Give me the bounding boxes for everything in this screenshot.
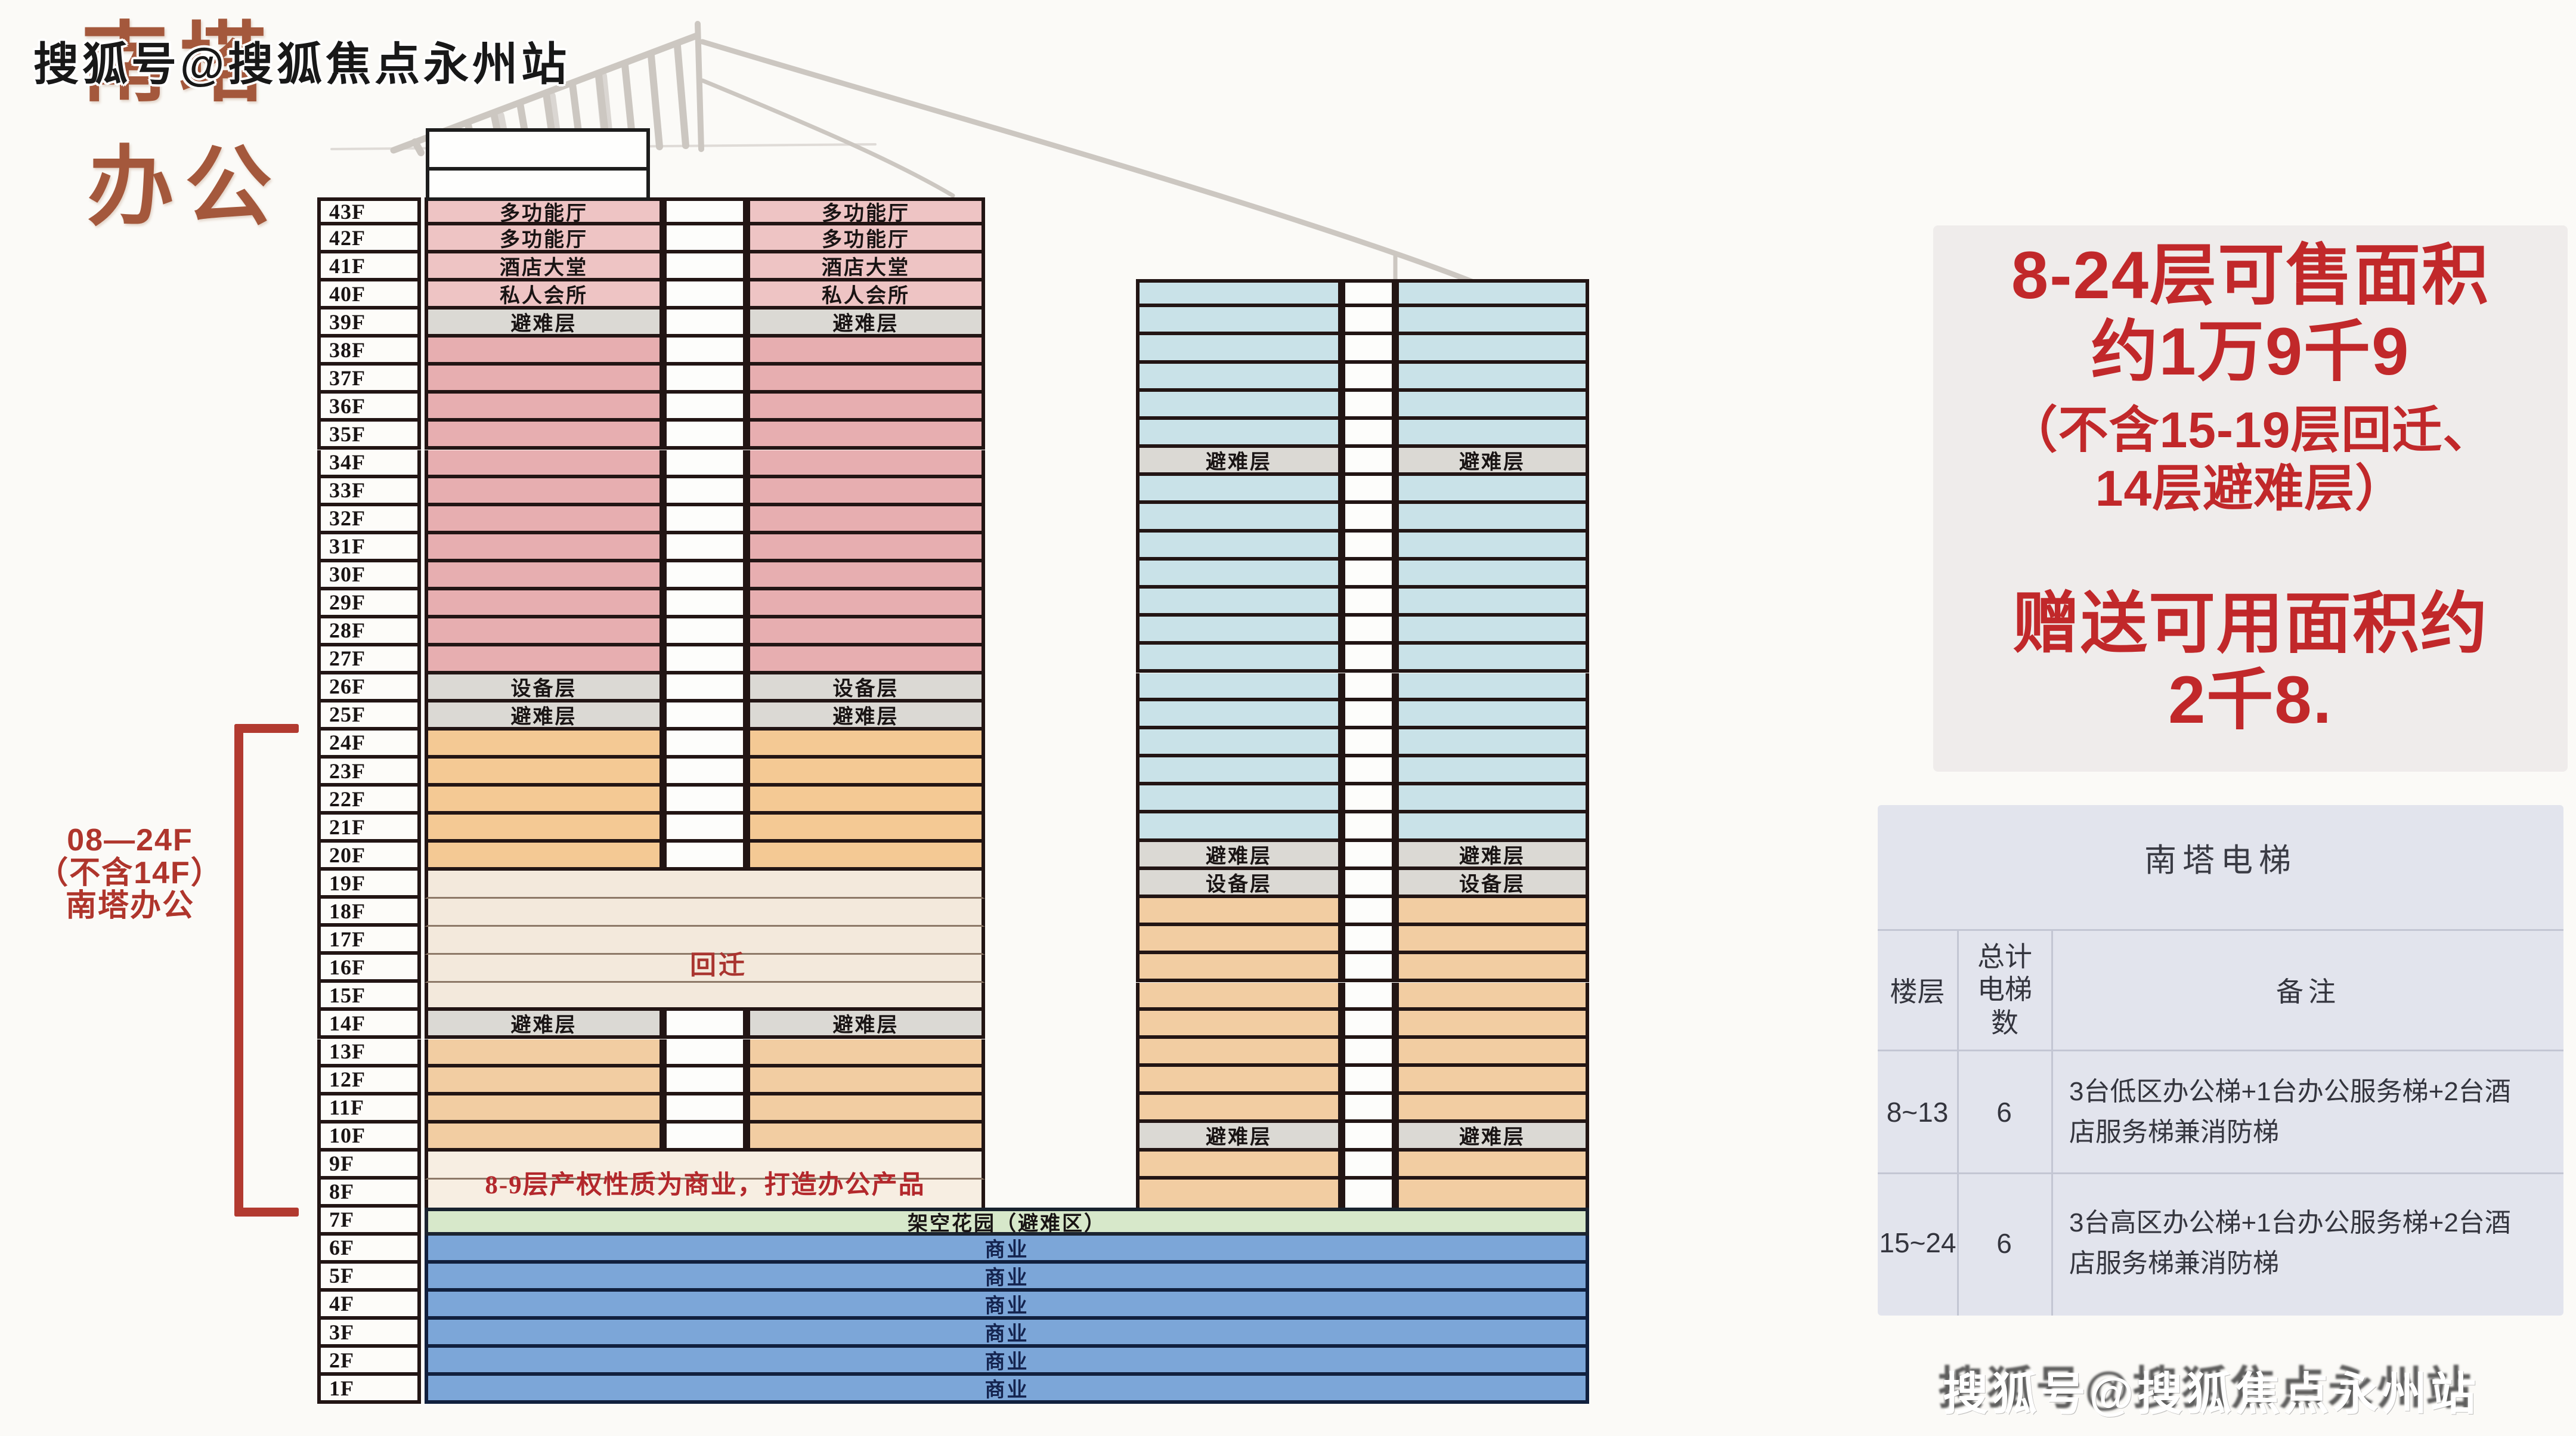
floor-cell-gap-26F <box>663 674 747 702</box>
north-row-11-gap <box>1342 561 1395 589</box>
elevator-row2-note: 3台高区办公梯+1台办公服务梯+2台酒店服务梯兼消防梯 <box>2069 1193 2528 1294</box>
floor-label-22F-text: 22F <box>321 787 366 812</box>
floor-label-6F-text: 6F <box>321 1235 354 1260</box>
north-row-5-left <box>1136 392 1342 420</box>
floor-cell-left-43F: 多功能厅 <box>425 197 663 225</box>
north-row-3-right <box>1395 335 1589 363</box>
floor-cell-gap-39F <box>663 310 747 338</box>
floor-cell-left-25F: 避难层 <box>425 702 663 731</box>
north-row-23-gap <box>1342 898 1395 926</box>
floor-label-9F: 9F <box>317 1152 421 1180</box>
floor-cell-gap-27F <box>663 646 747 674</box>
floor-cell-left-20F <box>425 843 663 871</box>
north-row-26-gap <box>1342 983 1395 1011</box>
north-row-22-left: 设备层 <box>1136 870 1342 898</box>
floor-cell-right-39F-text: 避难层 <box>833 307 899 336</box>
floor-cell-right-22F <box>747 787 985 815</box>
north-row-6-left <box>1136 420 1342 448</box>
watermark-bottom: 搜狐号@搜狐焦点永州站 <box>1943 1357 2479 1423</box>
floor-label-15F-text: 15F <box>321 983 366 1008</box>
north-row-26-left <box>1136 983 1342 1011</box>
north-row-26-right <box>1395 983 1589 1011</box>
floor-cell-1F: 商业 <box>425 1376 1589 1404</box>
north-row-5-right <box>1395 392 1589 420</box>
floor-cell-7F: 架空花园（避难区） <box>425 1208 1589 1236</box>
floor-label-36F-text: 36F <box>321 394 366 419</box>
floor-label-37F-text: 37F <box>321 366 366 391</box>
north-row-19-left <box>1136 785 1342 813</box>
floor-cell-left-38F <box>425 338 663 366</box>
floor-label-5F: 5F <box>317 1264 421 1292</box>
north-row-5-gap <box>1342 392 1395 420</box>
floor-label-16F: 16F <box>317 955 421 983</box>
floor-cell-gap-10F <box>663 1124 747 1152</box>
floor-label-25F-text: 25F <box>321 702 366 727</box>
north-row-28-right <box>1395 1039 1589 1067</box>
floor-cell-left-37F <box>425 366 663 394</box>
floor-cell-right-40F: 私人会所 <box>747 281 985 310</box>
floor-cell-left-35F <box>425 422 663 450</box>
north-row-29-left <box>1136 1067 1342 1095</box>
floor-label-27F: 27F <box>317 646 421 674</box>
floor-cell-left-14F-text: 避难层 <box>511 1008 577 1038</box>
floor-cell-left-40F-text: 私人会所 <box>500 279 588 308</box>
elevator-row1-note: 3台低区办公梯+1台办公服务梯+2台酒店服务梯兼消防梯 <box>2069 1061 2528 1163</box>
floor-label-23F: 23F <box>317 759 421 787</box>
floor-label-7F-text: 7F <box>321 1207 354 1232</box>
floor-label-22F: 22F <box>317 787 421 815</box>
north-row-2-gap <box>1342 307 1395 335</box>
north-row-12-left <box>1136 589 1342 617</box>
floor-cell-gap-37F <box>663 366 747 394</box>
north-row-22-right: 设备层 <box>1395 870 1589 898</box>
bracket-arm-top <box>234 724 299 733</box>
floor-cell-right-20F <box>747 843 985 871</box>
floor-cell-right-24F <box>747 731 985 759</box>
floor-label-17F-text: 17F <box>321 927 366 952</box>
north-row-7-right-text: 避难层 <box>1459 445 1525 475</box>
north-row-18-right <box>1395 757 1589 785</box>
north-row-27-gap <box>1342 1011 1395 1039</box>
north-row-2-right <box>1395 307 1589 335</box>
floor-label-26F-text: 26F <box>321 674 366 699</box>
floor-cell-right-34F <box>747 450 985 478</box>
north-row-30-left <box>1136 1095 1342 1123</box>
north-row-12-right <box>1395 589 1589 617</box>
floor-label-6F: 6F <box>317 1236 421 1264</box>
floor-cell-gap-36F <box>663 394 747 422</box>
floor-cell-left-28F <box>425 618 663 646</box>
north-row-25-right <box>1395 954 1589 982</box>
floor-cell-left-13F <box>425 1039 663 1067</box>
floor-cell-gap-23F <box>663 759 747 787</box>
floor-cell-gap-28F <box>663 618 747 646</box>
north-row-32-gap <box>1342 1152 1395 1180</box>
north-row-17-left <box>1136 729 1342 757</box>
north-row-31-left: 避难层 <box>1136 1123 1342 1151</box>
north-row-33-right <box>1395 1180 1589 1208</box>
floor-cell-gap-22F <box>663 787 747 815</box>
floor-label-3F-text: 3F <box>321 1320 354 1345</box>
floor-label-42F-text: 42F <box>321 225 366 250</box>
crown-box-lower <box>426 167 650 201</box>
floor-label-29F: 29F <box>317 590 421 618</box>
floor-label-8F-text: 8F <box>321 1179 354 1204</box>
huiqian-note: 回迁 <box>668 943 769 982</box>
north-row-3-left <box>1136 335 1342 363</box>
floor-label-28F-text: 28F <box>321 618 366 643</box>
stacking-diagram-page: 南塔 办公 搜狐号@搜狐焦点永州站 搜狐号@搜狐焦点永州站 43F多功能厅多功能… <box>0 0 2576 1436</box>
floor-cell-left-29F <box>425 590 663 618</box>
north-row-16-right <box>1395 701 1589 729</box>
floor-label-41F: 41F <box>317 253 421 281</box>
floor-cell-right-14F: 避难层 <box>747 1011 985 1039</box>
north-row-10-gap <box>1342 533 1395 561</box>
north-row-13-gap <box>1342 617 1395 645</box>
floor-label-11F: 11F <box>317 1095 421 1124</box>
floor-cell-3F-text: 商业 <box>985 1317 1029 1347</box>
floor-cell-gap-43F <box>663 197 747 225</box>
floor-label-30F-text: 30F <box>321 562 366 587</box>
north-row-20-gap <box>1342 813 1395 841</box>
floor-label-38F: 38F <box>317 338 421 366</box>
floor-cell-gap-32F <box>663 506 747 534</box>
floor-cell-right-41F-text: 酒店大堂 <box>822 251 910 280</box>
north-row-15-gap <box>1342 673 1395 701</box>
floor-cell-right-26F: 设备层 <box>747 674 985 702</box>
floor-label-31F: 31F <box>317 534 421 562</box>
floor-cell-left-39F-text: 避难层 <box>511 307 577 336</box>
floor-cell-left-24F <box>425 731 663 759</box>
floor-cell-right-43F: 多功能厅 <box>747 197 985 225</box>
floor-label-12F: 12F <box>317 1067 421 1095</box>
floor-label-10F: 10F <box>317 1124 421 1152</box>
floor-label-39F: 39F <box>317 310 421 338</box>
floor-cell-gap-30F <box>663 562 747 590</box>
floor-label-18F-text: 18F <box>321 899 366 924</box>
north-row-21-left-text: 避难层 <box>1206 840 1272 869</box>
floor-label-33F-text: 33F <box>321 478 366 503</box>
floor-cell-19F <box>425 871 985 899</box>
elevator-header-note: 备注 <box>2053 942 2563 1038</box>
floor-label-40F: 40F <box>317 281 421 310</box>
north-row-10-left <box>1136 533 1342 561</box>
floor-cell-2F: 商业 <box>425 1348 1589 1376</box>
sales-note-line1: 8-24层可售面积 <box>1933 240 2568 312</box>
north-row-13-right <box>1395 617 1589 645</box>
floor-label-32F-text: 32F <box>321 506 366 531</box>
floor-label-20F-text: 20F <box>321 843 366 868</box>
floor-label-24F: 24F <box>317 731 421 759</box>
floor-cell-gap-24F <box>663 731 747 759</box>
floor-label-10F-text: 10F <box>321 1123 366 1148</box>
floor-cell-right-14F-text: 避难层 <box>833 1008 899 1038</box>
floor-cell-7F-text: 架空花园（避难区） <box>908 1207 1106 1236</box>
floor-cell-2F-text: 商业 <box>985 1345 1029 1375</box>
north-row-24-left <box>1136 926 1342 954</box>
floor-cell-right-37F <box>747 366 985 394</box>
floor-cell-right-33F <box>747 478 985 506</box>
north-row-8-gap <box>1342 476 1395 504</box>
floor-cell-right-40F-text: 私人会所 <box>822 279 910 308</box>
floor-label-34F: 34F <box>317 450 421 478</box>
north-row-8-left <box>1136 476 1342 504</box>
floor-cell-left-26F-text: 设备层 <box>511 672 577 701</box>
floor-cell-left-32F <box>425 506 663 534</box>
floor-cell-left-36F <box>425 394 663 422</box>
floor-cell-right-23F <box>747 759 985 787</box>
elevator-header-count: 总计电梯数 <box>1973 937 2037 1042</box>
north-row-33-left <box>1136 1180 1342 1208</box>
bracket-vertical <box>234 724 243 1217</box>
floor-label-1F-text: 1F <box>321 1376 354 1401</box>
floor-cell-right-38F <box>747 338 985 366</box>
crown-box-upper <box>426 128 650 171</box>
floor-cell-15F <box>425 983 985 1011</box>
north-row-4-right <box>1395 364 1589 392</box>
north-row-11-left <box>1136 561 1342 589</box>
sales-note-line6: 2千8. <box>1933 664 2568 736</box>
floor-label-8F: 8F <box>317 1180 421 1208</box>
floor-cell-gap-35F <box>663 422 747 450</box>
floor-cell-right-41F: 酒店大堂 <box>747 253 985 281</box>
floor-cell-right-43F-text: 多功能厅 <box>822 197 910 226</box>
north-row-23-right <box>1395 898 1589 926</box>
floor-cell-right-27F <box>747 646 985 674</box>
floor-label-36F: 36F <box>317 394 421 422</box>
floor-cell-right-42F: 多功能厅 <box>747 225 985 253</box>
floor-cell-right-25F-text: 避难层 <box>833 700 899 729</box>
floor-cell-left-33F <box>425 478 663 506</box>
floor-cell-gap-20F <box>663 843 747 871</box>
floor-label-17F: 17F <box>317 927 421 955</box>
north-row-29-right <box>1395 1067 1589 1095</box>
floor-cell-3F: 商业 <box>425 1320 1589 1348</box>
north-row-18-gap <box>1342 757 1395 785</box>
floor-label-41F-text: 41F <box>321 253 366 278</box>
floor-cell-4F-text: 商业 <box>985 1289 1029 1319</box>
north-row-27-right <box>1395 1011 1589 1039</box>
north-row-19-gap <box>1342 785 1395 813</box>
floor-label-30F: 30F <box>317 562 421 590</box>
elevator-row1-count: 6 <box>1957 1067 2051 1157</box>
floor-cell-right-31F <box>747 534 985 562</box>
floor-cell-gap-21F <box>663 815 747 843</box>
floor-cell-left-39F: 避难层 <box>425 310 663 338</box>
floor-label-42F: 42F <box>317 225 421 253</box>
north-row-22-gap <box>1342 870 1395 898</box>
floor-label-32F: 32F <box>317 506 421 534</box>
bracket-arm-bottom <box>234 1208 299 1217</box>
floor-label-4F: 4F <box>317 1292 421 1320</box>
floor-label-12F-text: 12F <box>321 1067 366 1092</box>
north-row-17-right <box>1395 729 1589 757</box>
floor-label-27F-text: 27F <box>321 646 366 671</box>
floor-cell-right-29F <box>747 590 985 618</box>
north-row-4-gap <box>1342 364 1395 392</box>
north-row-3-gap <box>1342 335 1395 363</box>
floor-cell-18F <box>425 899 985 927</box>
elevator-hline-3 <box>1878 1172 2563 1174</box>
north-row-33-gap <box>1342 1180 1395 1208</box>
floor-cell-5F: 商业 <box>425 1264 1589 1292</box>
north-row-8-right <box>1395 476 1589 504</box>
floor-cell-left-25F-text: 避难层 <box>511 700 577 729</box>
elevator-row2-count: 6 <box>1957 1199 2051 1288</box>
floor-cell-1F-text: 商业 <box>985 1373 1029 1403</box>
north-row-31-left-text: 避难层 <box>1206 1121 1272 1150</box>
north-row-23-left <box>1136 898 1342 926</box>
north-row-14-left <box>1136 645 1342 673</box>
floor-cell-gap-38F <box>663 338 747 366</box>
floor-label-21F-text: 21F <box>321 815 366 840</box>
floor-cell-gap-29F <box>663 590 747 618</box>
floor-label-7F: 7F <box>317 1208 421 1236</box>
floor-cell-gap-13F <box>663 1039 747 1067</box>
north-row-16-left <box>1136 701 1342 729</box>
north-row-19-right <box>1395 785 1589 813</box>
north-row-25-gap <box>1342 954 1395 982</box>
floor-cell-left-26F: 设备层 <box>425 674 663 702</box>
floor-cell-gap-41F <box>663 253 747 281</box>
floor-cell-gap-34F <box>663 450 747 478</box>
floor-cell-left-12F <box>425 1067 663 1095</box>
north-row-7-left-text: 避难层 <box>1206 445 1272 475</box>
north-row-1-left <box>1136 279 1342 307</box>
floor-label-19F-text: 19F <box>321 871 366 896</box>
sales-note-line2: 约1万9千9 <box>1933 316 2568 388</box>
floor-cell-left-23F <box>425 759 663 787</box>
floor-label-29F-text: 29F <box>321 590 366 615</box>
floor-cell-left-22F <box>425 787 663 815</box>
floor-label-14F-text: 14F <box>321 1011 366 1036</box>
north-row-2-left <box>1136 307 1342 335</box>
floor-label-1F: 1F <box>317 1376 421 1404</box>
floor-cell-left-43F-text: 多功能厅 <box>500 197 588 226</box>
floor-label-18F: 18F <box>317 899 421 927</box>
north-row-9-right <box>1395 504 1589 532</box>
floor-label-34F-text: 34F <box>321 450 366 475</box>
floor-cell-right-11F <box>747 1095 985 1124</box>
elevator-table-title: 南塔电梯 <box>1878 834 2563 881</box>
floor-label-2F: 2F <box>317 1348 421 1376</box>
floor-label-2F-text: 2F <box>321 1348 354 1373</box>
floors-8-9-note: 8-9层产权性质为商业，打造办公产品 <box>425 1164 986 1201</box>
north-row-15-left <box>1136 673 1342 701</box>
floor-cell-left-41F: 酒店大堂 <box>425 253 663 281</box>
north-row-16-gap <box>1342 701 1395 729</box>
floor-label-16F-text: 16F <box>321 955 366 980</box>
north-row-21-gap <box>1342 842 1395 870</box>
floor-cell-right-21F <box>747 815 985 843</box>
floor-label-35F-text: 35F <box>321 422 366 447</box>
floor-cell-right-36F <box>747 394 985 422</box>
elevator-row1-floors: 8~13 <box>1878 1067 1957 1157</box>
floor-label-13F: 13F <box>317 1039 421 1067</box>
north-row-1-gap <box>1342 279 1395 307</box>
floor-label-24F-text: 24F <box>321 730 366 755</box>
elevator-hline-2 <box>1878 1050 2563 1051</box>
north-row-9-gap <box>1342 504 1395 532</box>
north-row-28-gap <box>1342 1039 1395 1067</box>
floor-label-37F: 37F <box>317 366 421 394</box>
floor-label-21F: 21F <box>317 815 421 843</box>
floor-label-35F: 35F <box>317 422 421 450</box>
floor-cell-5F-text: 商业 <box>985 1261 1029 1290</box>
floor-cell-right-32F <box>747 506 985 534</box>
floor-label-40F-text: 40F <box>321 281 366 307</box>
floor-cell-right-13F <box>747 1039 985 1067</box>
north-row-15-right <box>1395 673 1589 701</box>
floor-cell-gap-25F <box>663 702 747 731</box>
north-row-31-right: 避难层 <box>1395 1123 1589 1151</box>
floor-label-9F-text: 9F <box>321 1151 354 1176</box>
floor-cell-left-42F: 多功能厅 <box>425 225 663 253</box>
elevator-header-floors: 楼层 <box>1878 942 1957 1038</box>
floor-label-14F: 14F <box>317 1011 421 1039</box>
floor-cell-left-14F: 避难层 <box>425 1011 663 1039</box>
floor-cell-left-30F <box>425 562 663 590</box>
floor-cell-left-31F <box>425 534 663 562</box>
bracket-label-line1: 08—24F <box>25 824 235 857</box>
floor-cell-left-10F <box>425 1124 663 1152</box>
floor-cell-6F: 商业 <box>425 1236 1589 1264</box>
floor-cell-right-42F-text: 多功能厅 <box>822 223 910 252</box>
sales-note-line3: （不含15-19层回迁、 <box>1933 403 2568 457</box>
north-row-31-gap <box>1342 1123 1395 1151</box>
floor-cell-gap-33F <box>663 478 747 506</box>
floor-cell-left-42F-text: 多功能厅 <box>500 223 588 252</box>
floor-cell-right-12F <box>747 1067 985 1095</box>
north-row-29-gap <box>1342 1067 1395 1095</box>
north-row-32-left <box>1136 1152 1342 1180</box>
floor-label-38F-text: 38F <box>321 338 366 363</box>
bracket-label-line2: （不含14F） <box>25 857 235 890</box>
north-row-28-left <box>1136 1039 1342 1067</box>
floor-cell-left-27F <box>425 646 663 674</box>
floor-label-26F: 26F <box>317 674 421 702</box>
floor-label-5F-text: 5F <box>321 1263 354 1288</box>
north-row-21-right-text: 避难层 <box>1459 840 1525 869</box>
north-row-7-right: 避难层 <box>1395 448 1589 476</box>
north-row-1-right <box>1395 279 1589 307</box>
bracket-label-line3: 南塔办公 <box>25 890 235 923</box>
floor-label-19F: 19F <box>317 871 421 899</box>
north-row-14-gap <box>1342 645 1395 673</box>
north-row-24-gap <box>1342 926 1395 954</box>
north-row-12-gap <box>1342 589 1395 617</box>
north-row-6-right <box>1395 420 1589 448</box>
floor-cell-left-21F <box>425 815 663 843</box>
floor-cell-gap-11F <box>663 1095 747 1124</box>
floor-label-4F-text: 4F <box>321 1291 354 1316</box>
floor-label-31F-text: 31F <box>321 534 366 559</box>
floor-cell-right-10F <box>747 1124 985 1152</box>
north-row-27-left <box>1136 1011 1342 1039</box>
north-row-24-right <box>1395 926 1589 954</box>
floor-label-20F: 20F <box>317 843 421 871</box>
north-row-9-left <box>1136 504 1342 532</box>
floor-label-11F-text: 11F <box>321 1095 364 1120</box>
floor-label-28F: 28F <box>317 618 421 646</box>
north-row-25-left <box>1136 954 1342 982</box>
floor-label-33F: 33F <box>317 478 421 506</box>
floor-cell-gap-14F <box>663 1011 747 1039</box>
floor-label-39F-text: 39F <box>321 310 366 335</box>
north-row-22-left-text: 设备层 <box>1206 868 1272 897</box>
floor-cell-right-25F: 避难层 <box>747 702 985 731</box>
floor-cell-right-39F: 避难层 <box>747 310 985 338</box>
